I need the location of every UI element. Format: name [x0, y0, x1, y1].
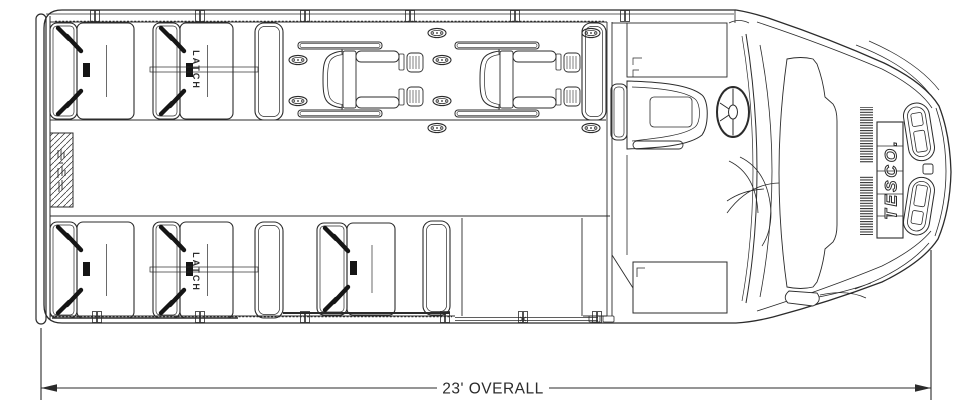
dimension-label: 23' OVERALL: [442, 381, 544, 398]
seat-barrier: [255, 222, 283, 318]
seat-belt: [325, 287, 348, 310]
belt-buckle: [83, 262, 90, 276]
entry-step: [603, 316, 614, 322]
latch-label: LATCH: [191, 50, 201, 90]
driver-door-opening: [627, 23, 727, 77]
floor-anchor: [289, 96, 307, 105]
passenger-seat: [317, 223, 395, 315]
belt-buckle: [83, 63, 90, 77]
footrest: [407, 53, 423, 72]
grille-band: [860, 107, 873, 163]
dimension-arrow-right: [915, 384, 931, 392]
entry-step: [589, 316, 600, 322]
seat-belt: [325, 228, 348, 251]
bumper-center-clip: [923, 164, 933, 174]
bus-floor-plan: LATCH LATCH: [0, 0, 964, 413]
wheel: [455, 42, 539, 49]
footrest: [564, 87, 580, 106]
window-pillar-ticks: [91, 11, 630, 323]
backrest: [480, 51, 500, 108]
floor-anchor: [433, 55, 451, 64]
seat-barrier: [255, 23, 283, 120]
dimension-arrow-left: [41, 384, 57, 392]
armrest: [513, 51, 556, 62]
wheel: [455, 110, 539, 117]
latch-callout-front: LATCH: [150, 50, 258, 90]
wheelchair-bay: [289, 28, 600, 132]
passenger-seat: [50, 23, 134, 119]
floor-anchor: [582, 123, 600, 132]
body-shell: [36, 10, 736, 324]
nose-outline: [736, 10, 951, 323]
floor-anchor: [582, 28, 600, 37]
hood-panel: [779, 58, 837, 289]
footrest: [407, 87, 423, 106]
seat-barrier: [423, 221, 450, 315]
brand-logo: TESCO.: [877, 122, 903, 238]
headlight-left: [902, 101, 937, 162]
cab-bulkhead: [607, 22, 612, 316]
entry-step-well: [589, 155, 727, 322]
grille-band: [860, 176, 873, 235]
backrest: [323, 51, 343, 108]
brand-text: TESCO.: [882, 138, 901, 219]
front-bumper-line: [935, 108, 946, 236]
armrest: [513, 97, 556, 108]
belt-buckle: [350, 261, 357, 275]
side-mirror: [785, 291, 819, 306]
headlight-right: [902, 175, 937, 236]
steering-wheel: [717, 87, 749, 137]
rear-equipment-box: [50, 133, 73, 207]
wheelchair-position: [455, 42, 580, 117]
wheel: [298, 110, 382, 117]
overall-dimension: 23' OVERALL: [41, 250, 931, 400]
cowl-line: [760, 45, 772, 297]
latch-callout-rear: LATCH: [150, 252, 258, 292]
armrest: [356, 97, 399, 108]
floor-anchor: [433, 96, 451, 105]
passenger-seat: [50, 222, 134, 318]
driver-seat: [611, 81, 707, 149]
footrest: [564, 53, 580, 72]
wheelchair-position: [298, 42, 423, 117]
front-nose: TESCO.: [729, 10, 951, 323]
latch-label: LATCH: [191, 252, 201, 292]
floor-anchor: [428, 28, 446, 37]
floor-anchor: [428, 123, 446, 132]
floor-anchor: [289, 55, 307, 64]
body-outline: [44, 10, 736, 323]
wheel: [298, 42, 382, 49]
drawing-canvas: LATCH LATCH: [0, 0, 964, 413]
armrest: [356, 51, 399, 62]
seat-barriers-layer: [255, 23, 606, 318]
side-door-opening: [455, 218, 598, 321]
